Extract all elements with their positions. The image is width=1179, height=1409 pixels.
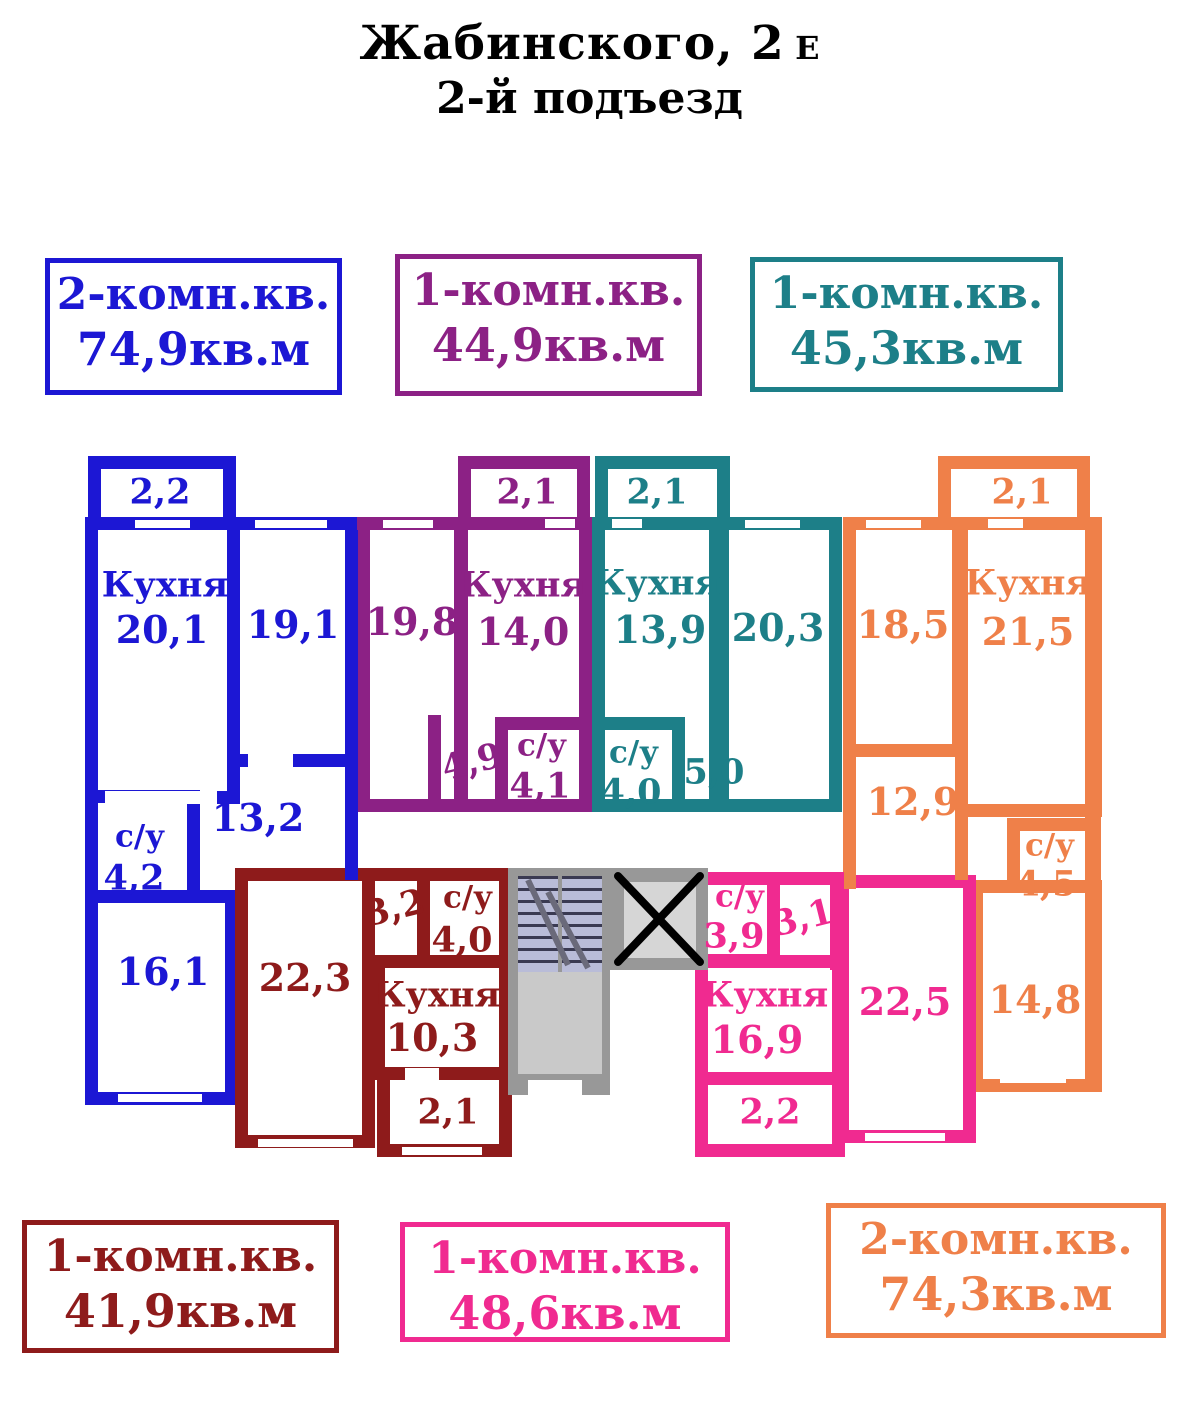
window-orange-room2 [1000,1075,1066,1083]
title-line1: Жабинского, 2 Е [0,16,1179,71]
label-teal-kitchen-name: Кухня [594,566,721,601]
label-darkred-kitchen-area: 10,3 [386,1019,479,1057]
elevator-cab [624,882,696,958]
label-teal-balcony: 2,1 [627,475,688,510]
label-purple-balcony: 2,1 [497,475,558,510]
label-teal-kitchen-area: 13,9 [614,611,707,649]
label-orange-kitchen-name: Кухня [965,566,1092,601]
door-purple-balcony [545,519,575,528]
label-purple-wc-area: 4,1 [510,769,571,804]
label-blue-wc-area: 4,2 [104,861,165,896]
door-blue-room1 [248,754,293,767]
legend-box-pink: 1-комн.кв. 48,6кв.м [400,1222,730,1342]
label-pink-kitchen-name: Кухня [702,978,829,1013]
label-darkred-wc-name: с/у [443,883,493,914]
label-purple-kitchen-name: Кухня [460,568,587,603]
door-teal-balcony [612,519,642,528]
page-title: Жабинского, 2 Е 2-й подъезд [0,16,1179,124]
wall-blue-hall-right [345,530,358,880]
label-darkred-balcony: 2,1 [418,1095,479,1130]
label-teal-wc-area: 4,0 [601,775,662,810]
wall-darkred-hall-top [372,868,430,881]
label-blue-kitchen-name: Кухня [102,568,229,603]
label-orange-hall-area: 12,9 [867,783,960,821]
label-pink-wc-area: 3,9 [704,919,765,954]
label-blue-wc-name: с/у [115,822,165,853]
label-orange-kitchen-area: 21,5 [982,613,1075,651]
window-teal-room [745,520,800,528]
door-orange-balcony [988,519,1023,528]
label-blue-room1-area: 19,1 [247,606,340,644]
label-purple-room-area: 19,8 [366,603,459,641]
legend-box-orange: 2-комн.кв. 74,3кв.м [826,1203,1166,1338]
legend-orange-area: 74,3кв.м [831,1267,1161,1321]
door-darkred-balcony [405,1068,439,1080]
label-orange-room1-area: 18,5 [857,606,950,644]
stair-treads-right [562,876,602,972]
legend-teal-area: 45,3кв.м [755,321,1058,375]
label-orange-room2-area: 14,8 [989,981,1082,1019]
label-teal-room-area: 20,3 [732,609,825,647]
window-darkred-balcony [402,1147,482,1155]
wall-orange-hall-left [843,757,856,889]
label-blue-balcony: 2,2 [130,475,191,510]
window-orange-room1 [866,520,921,528]
window-darkred-room [258,1139,353,1147]
label-darkred-kitchen-name: Кухня [374,978,501,1013]
window-blue-room1 [255,520,327,528]
legend-box-blue: 2-комн.кв. 74,9кв.м [45,258,342,395]
title-address: Жабинского, 2 [360,16,785,71]
label-purple-wc-name: с/у [517,731,567,762]
label-teal-wc-name: с/у [609,738,659,769]
label-purple-kitchen-area: 14,0 [477,613,570,651]
title-line2: 2-й подъезд [0,73,1179,124]
wall-orange-outer-right [1085,530,1101,1090]
title-building-letter: Е [795,29,819,67]
legend-purple-area: 44,9кв.м [400,318,697,372]
room-blue-kitchen [85,517,240,804]
room-blue-room2 [85,890,238,1105]
label-pink-wc-name: с/у [715,882,765,913]
label-blue-room2-area: 16,1 [117,953,210,991]
legend-teal-type: 1-комн.кв. [755,268,1058,319]
label-blue-hall-area: 13,2 [212,799,305,837]
legend-darkred-type: 1-комн.кв. [27,1231,334,1282]
label-pink-room-area: 22,5 [859,983,952,1021]
window-blue-room2 [118,1094,202,1102]
legend-blue-area: 74,9кв.м [50,322,337,376]
stair-landing [518,972,602,1074]
stair-treads-left [518,876,558,972]
label-pink-kitchen-area: 16,9 [711,1021,804,1059]
legend-box-darkred: 1-комн.кв. 41,9кв.м [22,1220,339,1353]
legend-pink-area: 48,6кв.м [405,1286,725,1340]
legend-purple-type: 1-комн.кв. [400,265,697,316]
legend-orange-type: 2-комн.кв. [831,1214,1161,1265]
legend-blue-type: 2-комн.кв. [50,269,337,320]
legend-box-purple: 1-комн.кв. 44,9кв.м [395,254,702,396]
label-darkred-room-area: 22,3 [259,959,352,997]
label-orange-balcony: 2,1 [992,475,1053,510]
label-pink-balcony: 2,2 [740,1095,801,1130]
legend-darkred-area: 41,9кв.м [27,1284,334,1338]
room-darkred-room [235,868,375,1148]
opening-blue-kitchen-hall [105,791,217,804]
label-teal-hall-area: 5,0 [684,755,745,790]
label-darkred-wc-area: 4,0 [432,923,493,958]
label-orange-wc-area: 4,5 [1016,867,1077,902]
window-purple-room [383,520,433,528]
label-orange-wc-name: с/у [1025,831,1075,862]
window-blue-kitchen [135,520,190,528]
floor-plan-page: Жабинского, 2 Е 2-й подъезд 2-комн.кв. 7… [0,0,1179,1409]
legend-pink-type: 1-комн.кв. [405,1233,725,1284]
label-blue-kitchen-area: 20,1 [116,611,209,649]
legend-box-teal: 1-комн.кв. 45,3кв.м [750,257,1063,392]
stair-door [528,1080,582,1095]
window-pink-room [865,1133,945,1141]
